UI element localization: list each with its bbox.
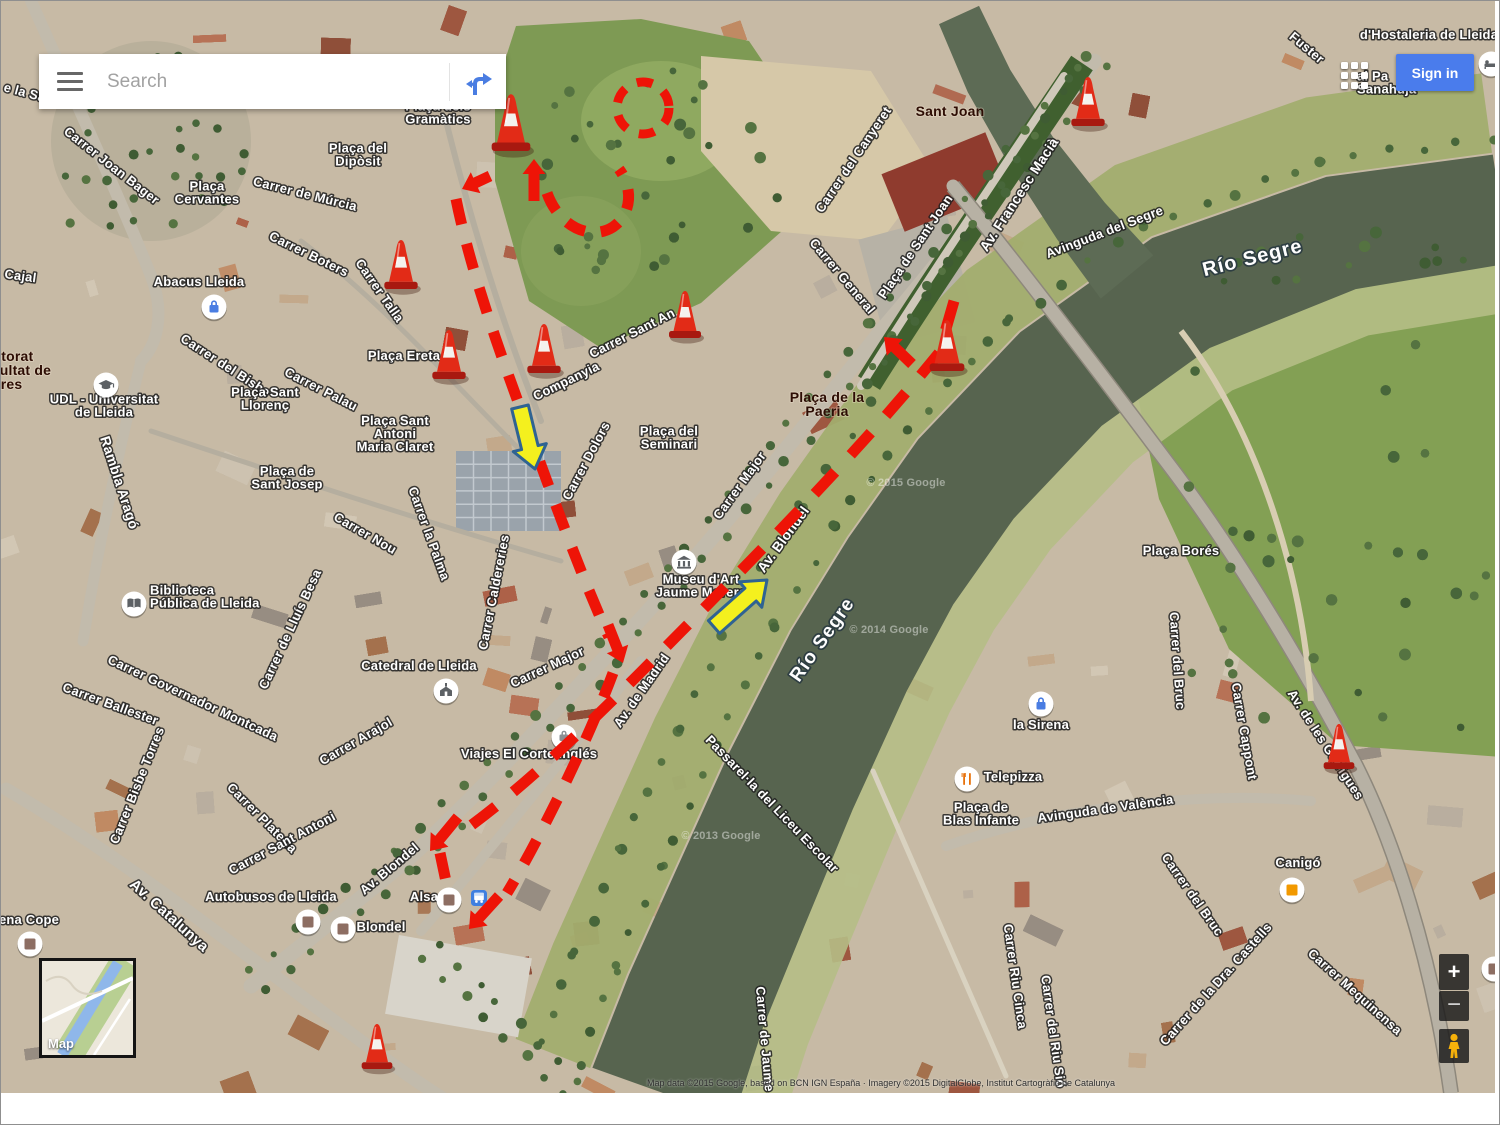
place-label: Catedral de Lleida (361, 658, 477, 673)
place-label: la Sirena (1013, 717, 1070, 732)
svg-text:Plaça delDipòsit: Plaça delDipòsit (329, 141, 387, 169)
map-viewport: e la SaCarrer Joan BagerCajalCarrer de M… (1, 1, 1495, 1093)
svg-text:Plaça delSeminari: Plaça delSeminari (640, 424, 698, 452)
place-label: Plaça delSeminari (640, 424, 698, 452)
university-icon[interactable] (93, 373, 119, 400)
svg-text:Plaça deSant Josep: Plaça deSant Josep (251, 464, 322, 492)
minimap-label: Map (48, 1036, 74, 1051)
search-bar (39, 54, 506, 109)
watermark: © 2013 Google (681, 830, 760, 842)
place-label: d'Hostaleria de Lleida (1360, 27, 1495, 42)
watermark: © 2015 Google (866, 477, 945, 489)
directions-icon[interactable] (450, 54, 506, 109)
menu-icon[interactable] (57, 67, 83, 96)
svg-text:Sant Joan: Sant Joan (916, 103, 985, 119)
svg-text:Autobusos de Lleida: Autobusos de Lleida (205, 889, 337, 904)
zoom-out-button[interactable]: − (1439, 991, 1469, 1021)
generic-poi-icon[interactable] (436, 888, 462, 915)
library-icon[interactable] (121, 592, 147, 619)
map-canvas[interactable]: e la SaCarrer Joan BagerCajalCarrer de M… (1, 1, 1495, 1093)
google-maps-screenshot: e la SaCarrer Joan BagerCajalCarrer de M… (0, 0, 1500, 1125)
generic-poi-icon[interactable] (295, 910, 321, 937)
svg-text:Canigó: Canigó (1275, 855, 1320, 870)
pegman-icon (1444, 1033, 1464, 1059)
place-label: Blondel (356, 919, 405, 934)
svg-text:Plaça SantLlorenç: Plaça SantLlorenç (231, 385, 299, 413)
place-label: Plaça deBlas Infante (943, 800, 1019, 828)
place-label: Abacus Lleida (154, 274, 245, 289)
svg-text:la Sirena: la Sirena (1013, 717, 1070, 732)
search-input[interactable] (105, 70, 449, 94)
svg-text:Alsa: Alsa (410, 889, 439, 904)
svg-text:Plaça Ereta: Plaça Ereta (368, 348, 441, 363)
svg-text:Telepizza: Telepizza (984, 769, 1043, 784)
restaurant-icon[interactable] (954, 767, 980, 794)
generic-poi-icon[interactable] (330, 917, 356, 944)
apps-grid-icon[interactable] (1341, 62, 1368, 89)
shopping-bag-icon[interactable] (1028, 692, 1054, 719)
place-label: Plaça Ereta (368, 348, 441, 363)
svg-text:Plaça deBlas Infante: Plaça deBlas Infante (943, 800, 1019, 828)
minimap[interactable]: Map (39, 958, 136, 1058)
place-label: Museu d'ArtJaume Morera (656, 572, 747, 600)
place-label: Plaça Borés (1143, 543, 1220, 558)
signin-button[interactable]: Sign in (1396, 54, 1474, 91)
svg-text:© 2015 Google: © 2015 Google (866, 477, 945, 489)
generic-poi-icon[interactable] (17, 932, 43, 959)
place-label: Telepizza (984, 769, 1043, 784)
svg-text:Abacus Lleida: Abacus Lleida (154, 274, 245, 289)
svg-text:Museu d'ArtJaume Morera: Museu d'ArtJaume Morera (656, 572, 747, 600)
shopping-bag-icon[interactable] (201, 295, 227, 322)
svg-text:Catedral de Lleida: Catedral de Lleida (361, 658, 477, 673)
watermark: © 2014 Google (849, 624, 928, 636)
svg-text:ena Cope: ena Cope (1, 912, 59, 927)
svg-text:© 2013 Google: © 2013 Google (681, 830, 760, 842)
place-label: Alsa (410, 889, 439, 904)
place-label: Plaça SantLlorenç (231, 385, 299, 413)
place-label: Plaça deSant Josep (251, 464, 322, 492)
svg-text:Plaça Borés: Plaça Borés (1143, 543, 1220, 558)
zoom-in-button[interactable]: + (1439, 954, 1469, 990)
area-label: Sant Joan (916, 103, 985, 119)
svg-text:© 2014 Google: © 2014 Google (849, 624, 928, 636)
generic-poi-icon[interactable] (1279, 878, 1305, 905)
cathedral-icon[interactable] (433, 679, 459, 706)
bus-stop-icon[interactable] (471, 890, 487, 906)
place-label: Autobusos de Lleida (205, 889, 337, 904)
svg-text:d'Hostaleria de Lleida: d'Hostaleria de Lleida (1360, 27, 1495, 42)
svg-text:Blondel: Blondel (356, 919, 405, 934)
place-label: Canigó (1275, 855, 1320, 870)
pegman-button[interactable] (1439, 1029, 1469, 1063)
place-label: Plaça delDipòsit (329, 141, 387, 169)
attribution: Map data ©2015 Google, based on BCN IGN … (561, 1078, 1201, 1088)
place-label: ena Cope (1, 912, 59, 927)
museum-icon[interactable] (671, 550, 697, 577)
